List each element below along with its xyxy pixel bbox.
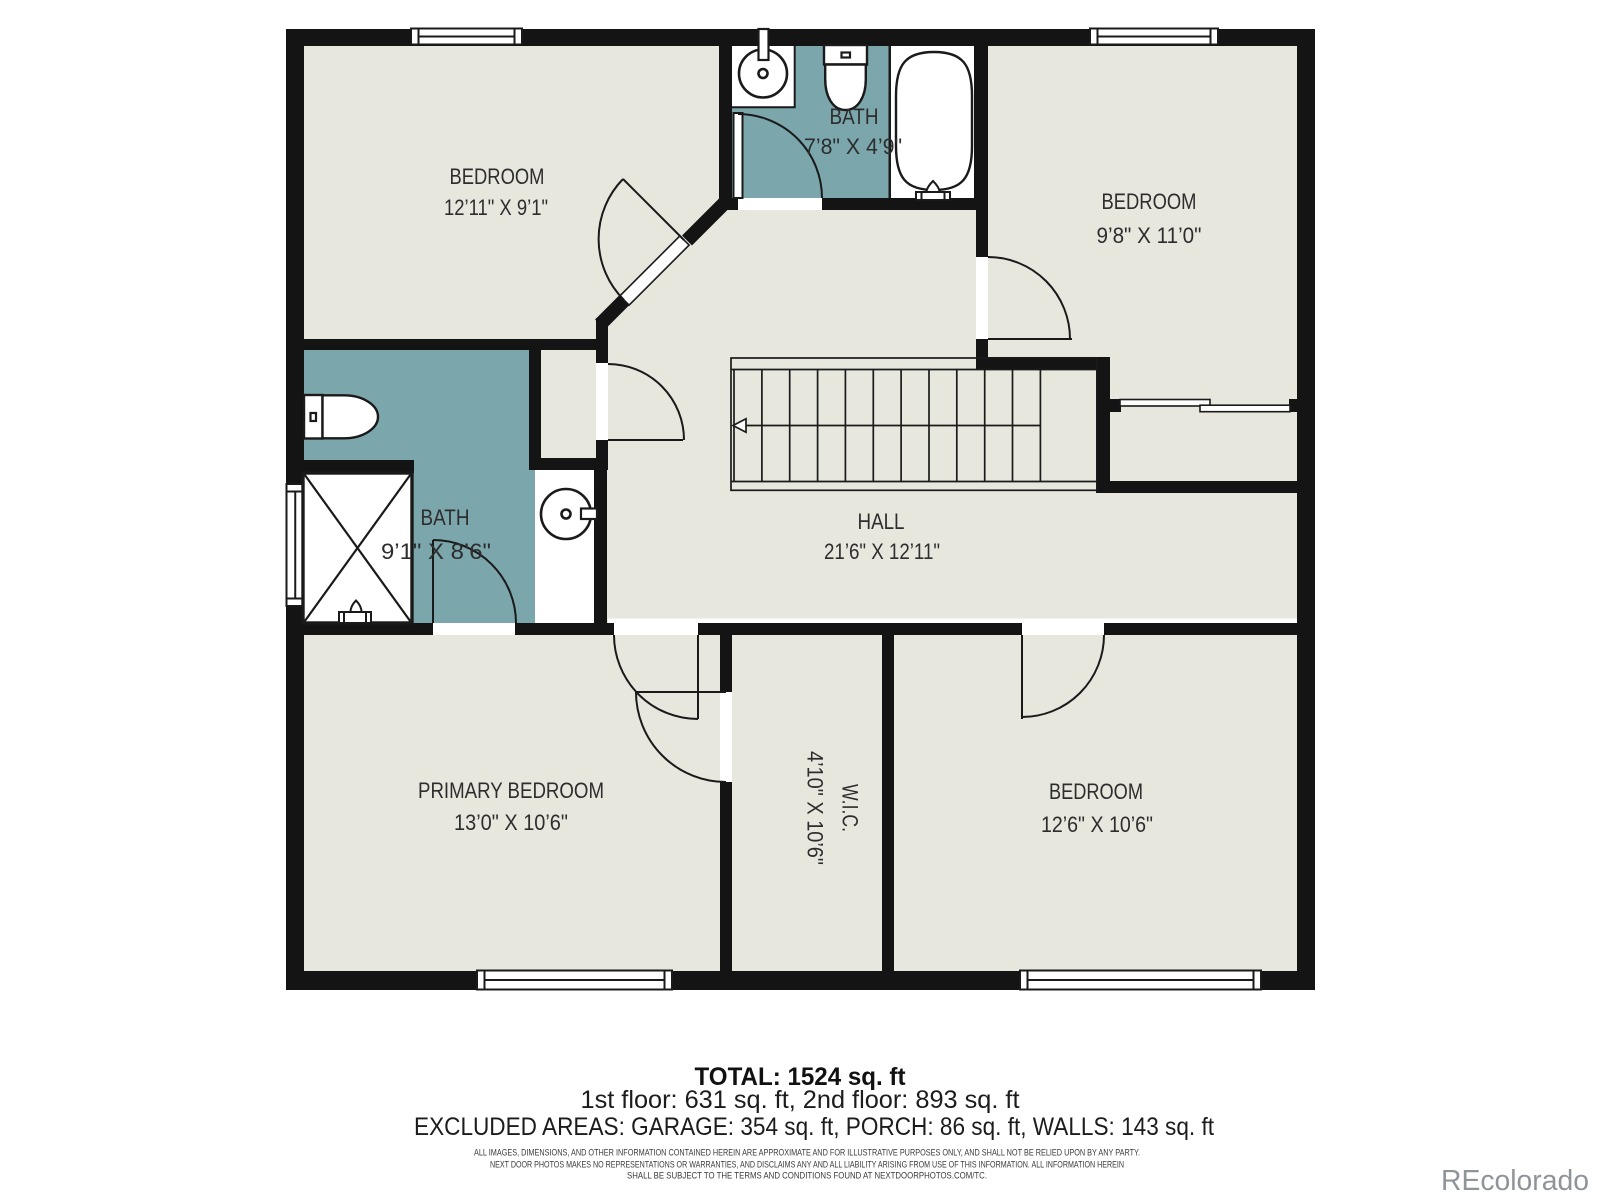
svg-text:W.I.C.: W.I.C. xyxy=(838,784,863,832)
svg-text:13’0" X 10’6": 13’0" X 10’6" xyxy=(454,810,568,835)
svg-text:BATH: BATH xyxy=(830,104,879,129)
svg-text:7’8" X 4’9": 7’8" X 4’9" xyxy=(804,134,902,159)
svg-text:NEXT DOOR PHOTOS MAKES NO REPR: NEXT DOOR PHOTOS MAKES NO REPRESENTATION… xyxy=(490,1160,1124,1170)
svg-text:PRIMARY BEDROOM: PRIMARY BEDROOM xyxy=(418,778,604,803)
svg-text:4’10" X 10’6": 4’10" X 10’6" xyxy=(803,751,828,865)
svg-text:HALL: HALL xyxy=(858,509,905,534)
svg-text:1st floor: 631 sq. ft, 2nd flo: 1st floor: 631 sq. ft, 2nd floor: 893 sq… xyxy=(581,1086,1020,1114)
svg-text:12’6" X 10’6": 12’6" X 10’6" xyxy=(1041,812,1153,837)
svg-text:12’11" X 9’1": 12’11" X 9’1" xyxy=(444,195,548,220)
svg-text:9’1" X 8’6": 9’1" X 8’6" xyxy=(381,539,491,564)
svg-text:BATH: BATH xyxy=(421,505,470,530)
svg-text:SHALL BE SUBJECT TO THE TERMS: SHALL BE SUBJECT TO THE TERMS AND CONDIT… xyxy=(627,1171,987,1181)
svg-text:BEDROOM: BEDROOM xyxy=(1102,189,1197,214)
svg-text:EXCLUDED AREAS: GARAGE: 354 sq: EXCLUDED AREAS: GARAGE: 354 sq. ft, PORC… xyxy=(414,1113,1214,1141)
svg-text:21’6" X 12’11": 21’6" X 12’11" xyxy=(824,539,940,564)
svg-text:ALL IMAGES, DIMENSIONS, AND OT: ALL IMAGES, DIMENSIONS, AND OTHER INFORM… xyxy=(474,1148,1140,1158)
svg-text:BEDROOM: BEDROOM xyxy=(1049,779,1143,804)
svg-text:9’8" X 11’0": 9’8" X 11’0" xyxy=(1097,223,1202,248)
svg-text:REcolorado: REcolorado xyxy=(1441,1165,1589,1197)
svg-text:BEDROOM: BEDROOM xyxy=(450,164,545,189)
